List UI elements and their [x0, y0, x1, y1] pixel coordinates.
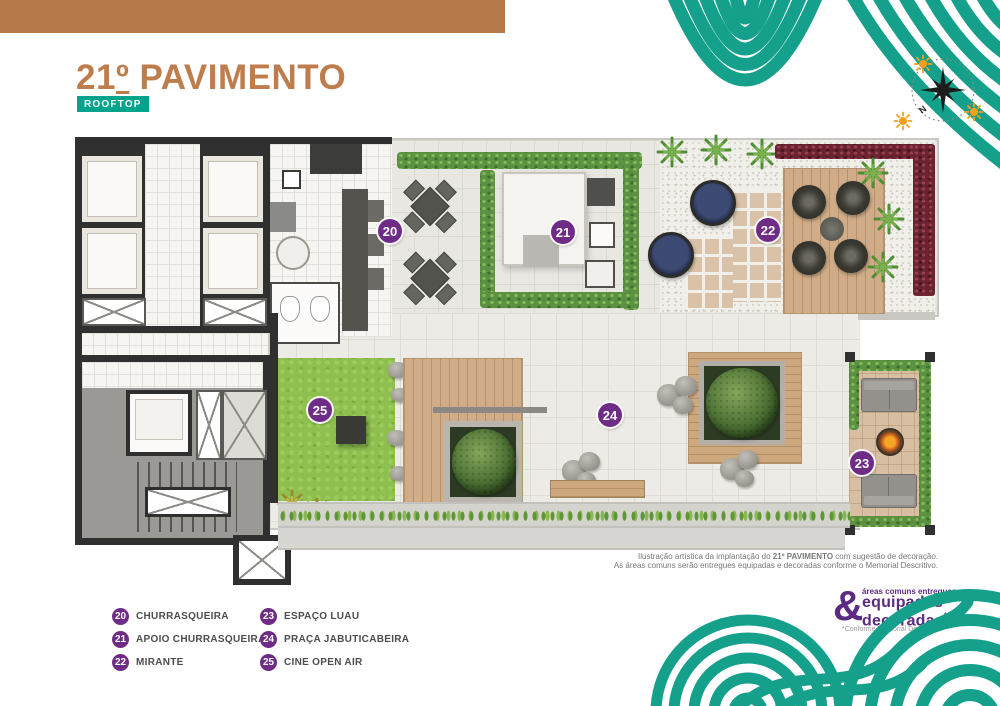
- compass-north-label: N: [917, 104, 928, 116]
- plan-badge-20: 20: [378, 219, 402, 243]
- legend-badge: 24: [260, 631, 277, 648]
- sun-icon: [895, 113, 912, 130]
- wave-pattern-bottom: [440, 560, 1000, 706]
- shaft: [222, 390, 267, 460]
- plant-icon: [866, 196, 912, 242]
- page-title: 21º PAVIMENTO: [76, 58, 346, 98]
- rooftop-badge: ROOFTOP: [77, 96, 149, 112]
- toilet: [310, 296, 330, 322]
- plant-icon: [860, 244, 906, 290]
- hedge: [623, 152, 639, 310]
- legend-item: 23ESPAÇO LUAU: [260, 608, 409, 625]
- sink: [282, 170, 301, 189]
- side-table: [589, 222, 615, 248]
- compass-icon: N: [888, 42, 998, 142]
- bar-counter: [342, 189, 368, 331]
- legend-badge: 21: [112, 631, 129, 648]
- legend-badge: 22: [112, 654, 129, 671]
- title-rest: PAVIMENTO: [129, 58, 346, 97]
- shaft: [82, 298, 146, 326]
- plan-badge-23: 23: [850, 451, 874, 475]
- legend-column-2: 23ESPAÇO LUAU 24PRAÇA JABUTICABEIRA 25CI…: [260, 608, 409, 671]
- post: [925, 525, 935, 535]
- side-table: [585, 260, 615, 288]
- center-table: [820, 217, 844, 241]
- mirante-gravel: [660, 140, 935, 312]
- jabuticabeira-tree: [452, 429, 516, 495]
- elevator-cab: [203, 156, 263, 222]
- plan-badge-22: 22: [756, 218, 780, 242]
- wall: [270, 313, 278, 503]
- toilet: [280, 296, 300, 322]
- boulder-cluster: [720, 450, 764, 490]
- plan-badge-25: 25: [308, 398, 332, 422]
- counter-corner: [310, 144, 362, 174]
- jabuticabeira-tree: [706, 368, 778, 438]
- legend-column-1: 20CHURRASQUEIRA 21APOIO CHURRASQUEIRA 22…: [112, 608, 266, 671]
- post: [925, 352, 935, 362]
- floor-plan: 20 21 22 23 24 25: [75, 130, 935, 575]
- sofa: [861, 474, 917, 508]
- plant-icon: [850, 150, 896, 196]
- tree-deck: [403, 358, 523, 505]
- elevator-hall: [145, 144, 200, 326]
- boulder-cluster: [657, 376, 703, 418]
- post: [845, 352, 855, 362]
- hanging-chair: [690, 180, 736, 226]
- legend-badge: 25: [260, 654, 277, 671]
- bar-stool: [368, 200, 384, 222]
- cine-lawn: [278, 358, 395, 501]
- page: 21º PAVIMENTO ROOFTOP N: [0, 0, 1000, 706]
- shaft: [203, 298, 267, 326]
- hanging-chair: [648, 232, 694, 278]
- stair-core: [75, 355, 270, 545]
- hedge: [480, 292, 639, 308]
- title-ordinal: º: [116, 58, 129, 97]
- hedge: [919, 360, 931, 527]
- oven: [276, 236, 310, 270]
- legend-item: 24PRAÇA JABUTICABEIRA: [260, 631, 409, 648]
- planter-deck: [688, 352, 802, 464]
- legend-item: 25CINE OPEN AIR: [260, 654, 409, 671]
- legend-item: 22MIRANTE: [112, 654, 266, 671]
- restrooms: [270, 282, 340, 344]
- hanging-chair: [792, 185, 826, 219]
- support-area: [270, 137, 392, 337]
- luau-area: [845, 352, 935, 535]
- sofa: [861, 378, 917, 412]
- legend-label: PRAÇA JABUTICABEIRA: [284, 634, 409, 645]
- compass-star: [920, 67, 966, 113]
- elevator-core: [75, 137, 270, 333]
- legend-item: 21APOIO CHURRASQUEIRA: [112, 631, 266, 648]
- side-table: [587, 178, 615, 206]
- cine-screen: [336, 416, 366, 444]
- hedge: [480, 170, 495, 308]
- legend-badge: 23: [260, 608, 277, 625]
- legend-badge: 20: [112, 608, 129, 625]
- legend-item: 20CHURRASQUEIRA: [112, 608, 266, 625]
- hedge: [849, 360, 859, 430]
- stair-lobby: [82, 362, 263, 388]
- red-plant-bed: [913, 144, 935, 296]
- plant-icon: [650, 130, 694, 174]
- sun-icon: [966, 104, 983, 121]
- bar-stool: [368, 268, 384, 290]
- legend-label: ESPAÇO LUAU: [284, 611, 359, 622]
- legend-label: CHURRASQUEIRA: [136, 611, 229, 622]
- sidewalk: [278, 528, 845, 550]
- header-bar: [0, 0, 505, 33]
- plan-badge-21: 21: [551, 220, 575, 244]
- plant-icon: [694, 128, 738, 172]
- title-number: 21: [76, 58, 116, 97]
- stair-well: [145, 487, 231, 517]
- elevator-cab: [82, 228, 142, 294]
- elevator-cab: [203, 228, 263, 294]
- hanging-chair: [792, 241, 826, 275]
- shaft: [196, 390, 222, 460]
- bench: [550, 480, 645, 498]
- sun-icon: [915, 56, 932, 73]
- plan-badge-24: 24: [598, 403, 622, 427]
- bench: [433, 407, 547, 413]
- stepping-stones: [730, 190, 782, 302]
- hedge: [397, 152, 642, 169]
- planter-strip: [278, 502, 850, 528]
- legend-label: MIRANTE: [136, 657, 184, 668]
- elevator-cab: [82, 156, 142, 222]
- prep-counter: [270, 202, 296, 232]
- legend-label: CINE OPEN AIR: [284, 657, 363, 668]
- legend-label: APOIO CHURRASQUEIRA: [136, 634, 266, 645]
- fire-pit: [876, 428, 904, 456]
- service-elevator: [126, 390, 192, 456]
